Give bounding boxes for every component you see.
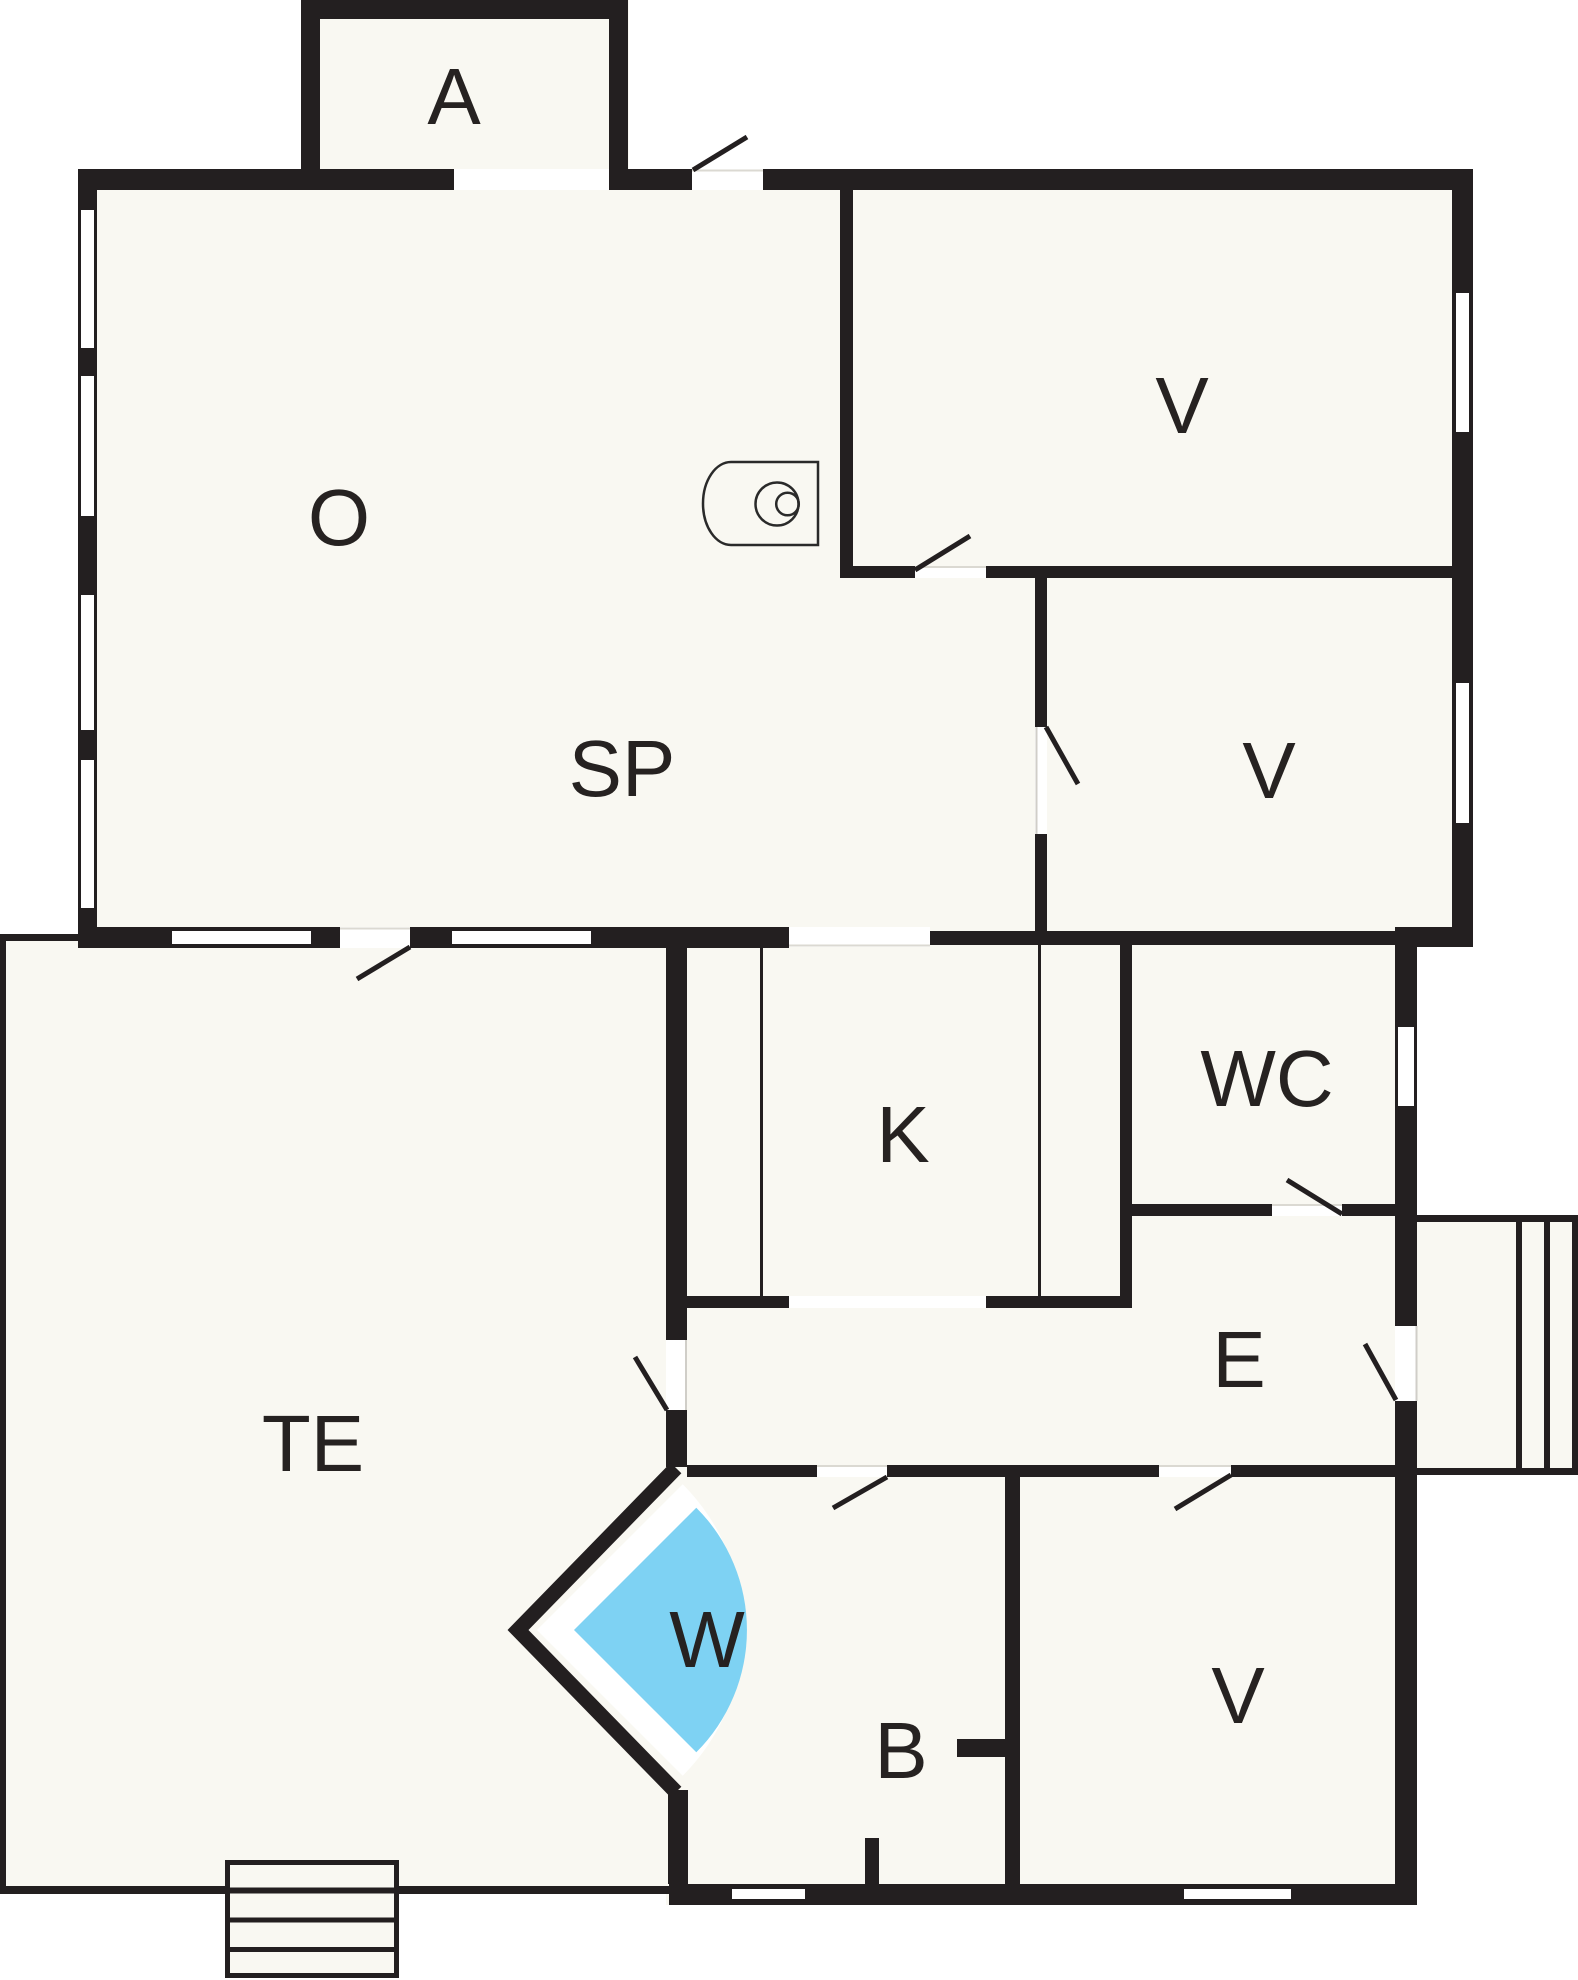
svg-text:O: O	[308, 473, 370, 562]
svg-text:V: V	[1155, 361, 1209, 450]
svg-text:K: K	[876, 1090, 929, 1179]
svg-text:B: B	[874, 1706, 927, 1795]
svg-text:TE: TE	[262, 1399, 364, 1488]
svg-text:WC: WC	[1200, 1034, 1333, 1123]
svg-text:SP: SP	[569, 724, 676, 813]
svg-text:A: A	[427, 52, 481, 141]
svg-text:E: E	[1212, 1315, 1265, 1404]
svg-text:V: V	[1242, 726, 1296, 815]
svg-text:W: W	[669, 1595, 745, 1684]
svg-text:V: V	[1211, 1651, 1265, 1740]
